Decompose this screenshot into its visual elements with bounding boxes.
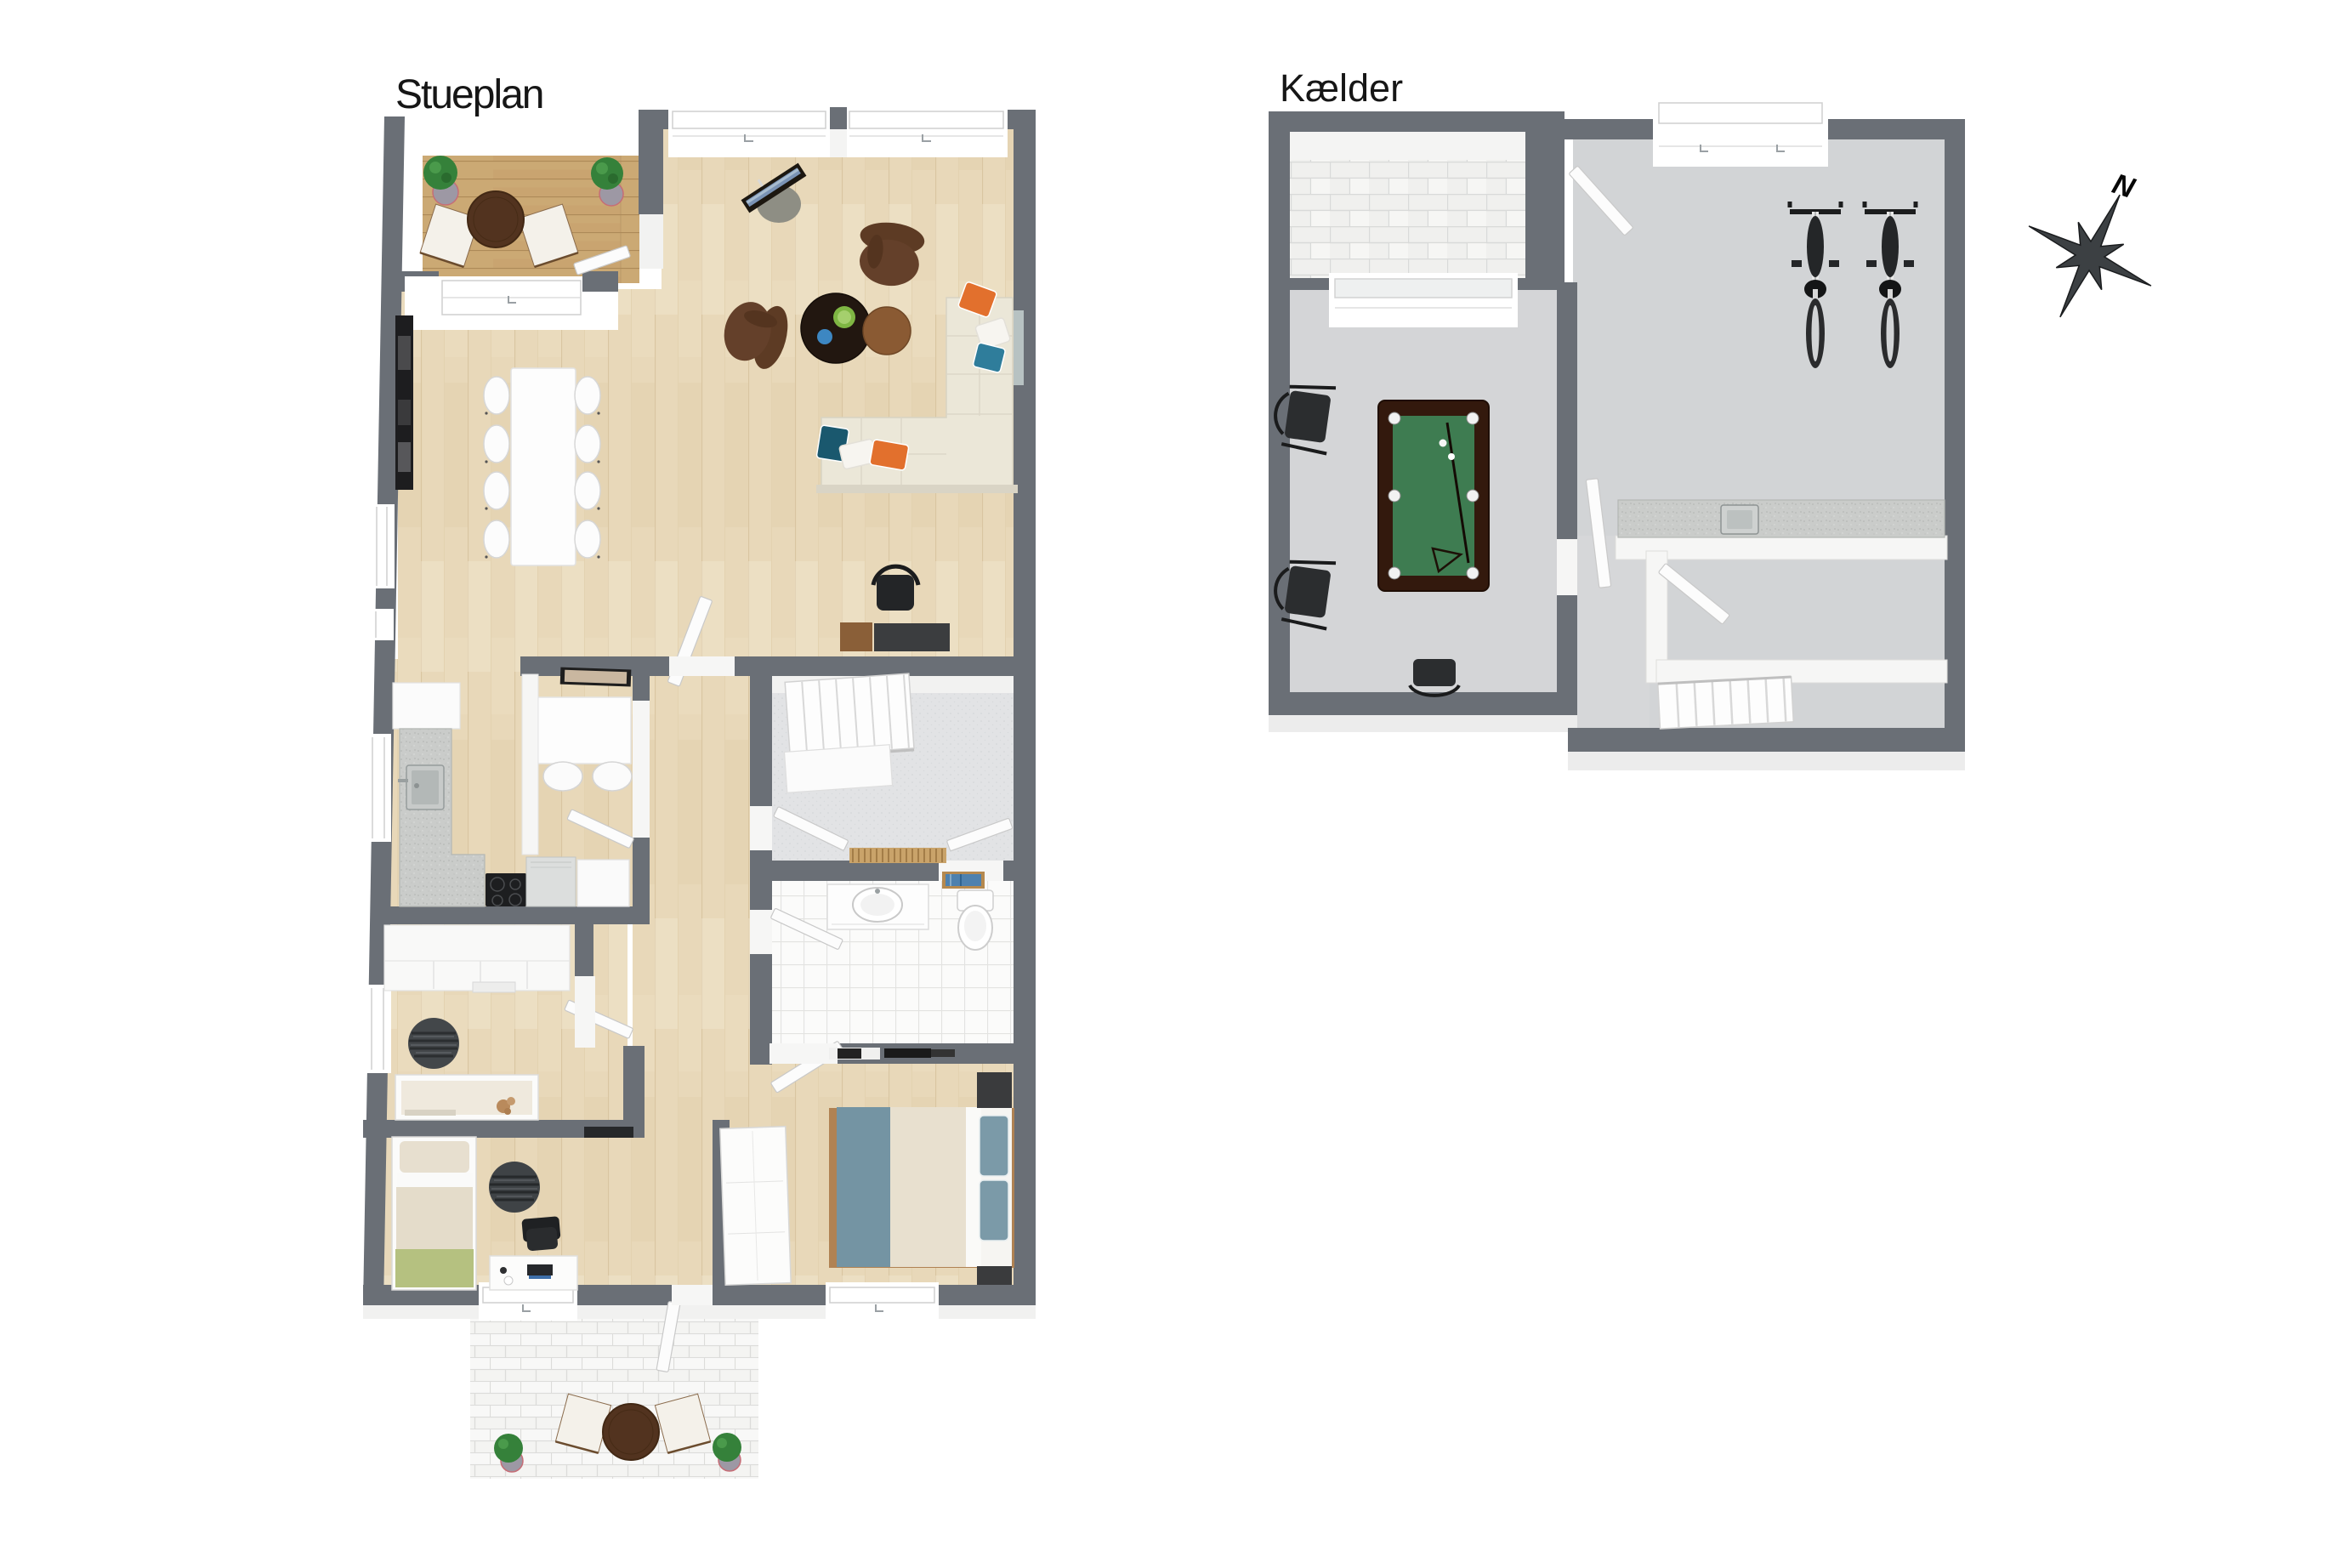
- svg-text:Kælder: Kælder: [1280, 66, 1403, 110]
- svg-text:N: N: [2109, 168, 2139, 205]
- svg-text:Stueplan: Stueplan: [395, 72, 543, 117]
